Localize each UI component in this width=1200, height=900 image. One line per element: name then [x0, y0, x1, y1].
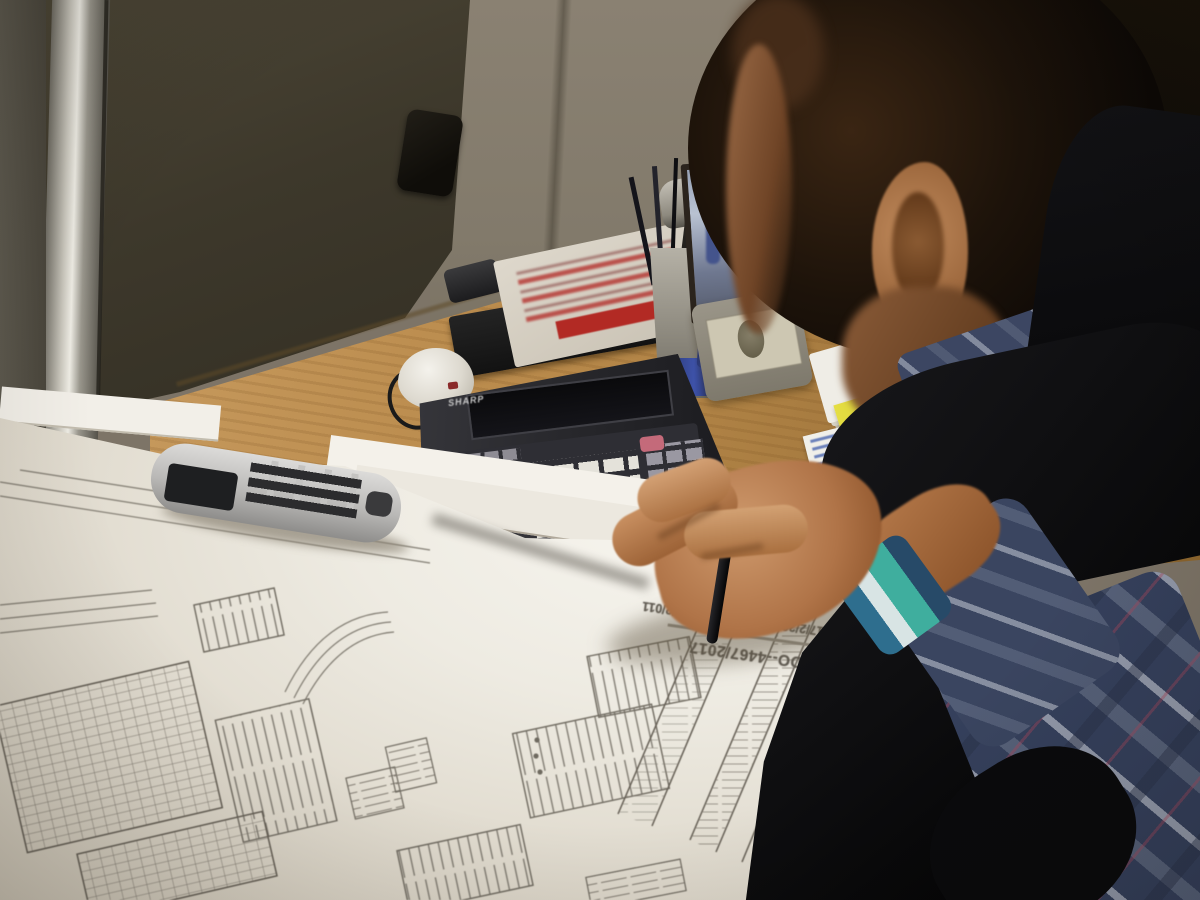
calculator-pink-key: [639, 435, 665, 453]
man-forehead-edge: [726, 44, 792, 334]
door-left-panel: [0, 0, 46, 452]
cordless-phone-tip: [364, 490, 393, 518]
calculator-logo-dot: [448, 381, 459, 389]
office-photo-scene: SHARP: [0, 0, 1200, 900]
